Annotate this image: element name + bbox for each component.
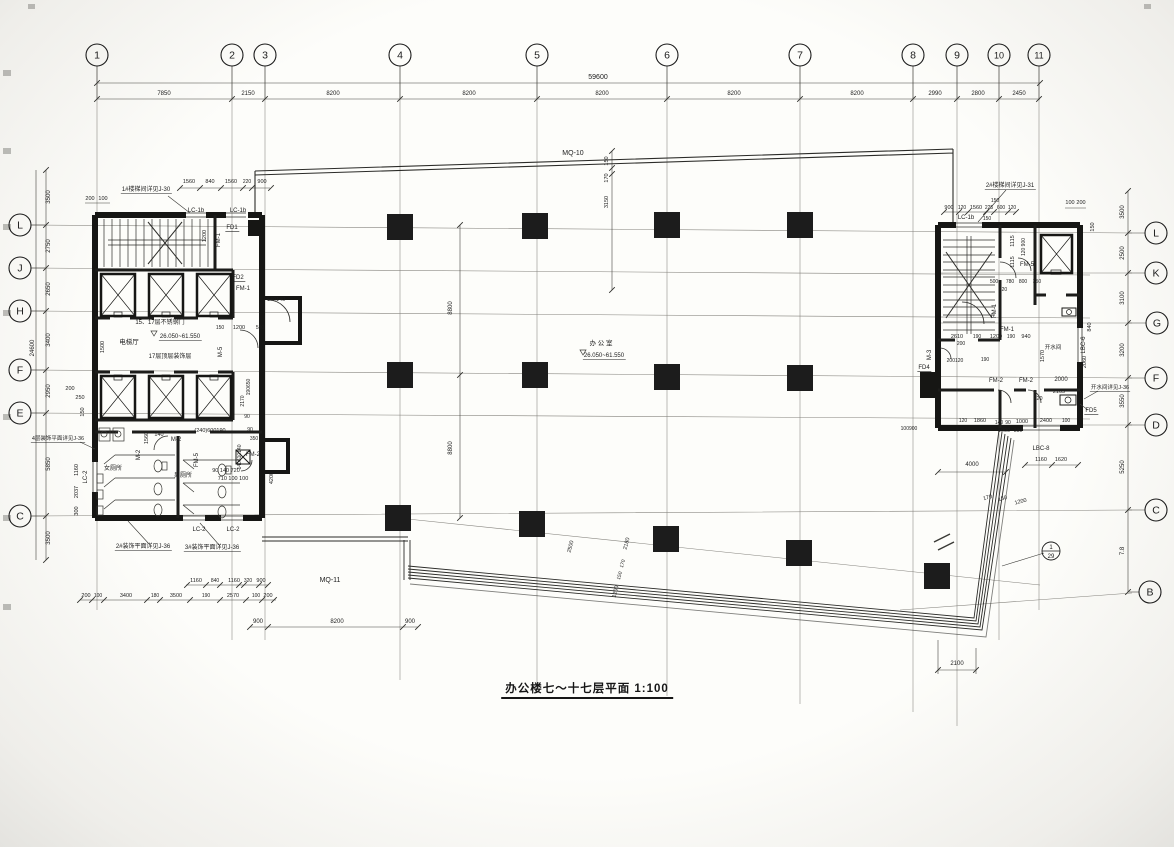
annotation-label: 90 <box>1005 420 1011 426</box>
annotation-label: 300 <box>74 506 80 515</box>
annotation-label: 840 <box>1087 322 1093 331</box>
annotation-label: 150 <box>998 495 1008 503</box>
annotation-label: 3400 <box>120 593 132 599</box>
column <box>654 364 680 390</box>
annotation-label: 1000 <box>998 428 1010 434</box>
annotation-label: 1560 <box>225 179 237 185</box>
annotation-label: 710 100 100 <box>218 476 249 482</box>
annotation-label: FM-2 <box>246 452 261 458</box>
grid-bubble-label: 9 <box>954 50 960 62</box>
annotation-label: 190 <box>202 593 211 599</box>
annotation-label: 2150 <box>241 91 255 97</box>
annotation-label: 3500 <box>46 531 52 545</box>
annotation-label: 100 <box>1062 418 1071 424</box>
drawing-title: 办公楼七～十七层平面 1:100 <box>501 680 673 699</box>
annotation-label: 2500 <box>567 540 576 553</box>
annotation-label: 3#装饰平面详见J-36 <box>185 543 240 551</box>
annotation-label: 1160 <box>228 578 240 584</box>
annotation-label: 900 <box>944 205 953 211</box>
annotation-label: 190650 <box>246 378 252 395</box>
annotation-label: 150 <box>1090 222 1096 231</box>
annotation-label: 200 <box>957 341 966 347</box>
annotation-label: 2100 <box>950 661 964 667</box>
annotation-label: FD1 <box>226 225 238 231</box>
annotation-label: 120 900 <box>1021 238 1027 256</box>
annotation-label: FM-1 <box>236 286 251 292</box>
annotation-label: FD2 <box>232 275 244 281</box>
grid-bubble-label: 5 <box>534 50 540 62</box>
annotation-label: FM-1 <box>1000 327 1015 333</box>
annotation-label: LC-1b <box>958 215 975 221</box>
annotation-label: 190 <box>1007 334 1016 340</box>
annotation-label: 120 <box>958 205 967 211</box>
annotation-label: 550 <box>256 325 265 331</box>
annotation-label: 140610140 <box>237 444 243 469</box>
annotation-label: 640140 <box>267 297 285 303</box>
grid-bubble-label: 8 <box>910 50 916 62</box>
annotation-label: 225 <box>985 205 994 211</box>
annotation-label: 120 <box>999 287 1008 293</box>
annotation-label: 90 <box>247 427 253 433</box>
annotation-label: 4200 <box>269 472 275 484</box>
annotation-label: FM-1 <box>992 303 998 318</box>
annotation-label: 8800 <box>448 301 454 315</box>
annotation-label: 140 <box>154 432 163 438</box>
annotation-label: 1000 <box>1016 419 1028 425</box>
curtain-wall-mq11 <box>262 430 1014 637</box>
annotation-label: 840 <box>211 578 220 584</box>
annotation-label: 100 <box>252 593 261 599</box>
annotation-label: 150 <box>80 407 86 416</box>
annotation-label: 1200 <box>612 585 621 598</box>
annotation-label: LC-2 <box>192 527 206 533</box>
annotation-label: LC-1b <box>230 208 247 214</box>
annotation-label: 2950 <box>46 384 52 398</box>
annotation-label: 3500 <box>46 190 52 204</box>
annotation-label: 5850 <box>46 457 52 471</box>
annotation-label: 180 <box>151 593 160 599</box>
annotation-label: M-2 <box>171 437 182 443</box>
annotation-label: 90 140 720 <box>212 468 240 474</box>
annotation-label: 8200 <box>462 91 476 97</box>
window-lines <box>93 213 1082 520</box>
annotation-label: 780 <box>1006 279 1015 285</box>
annotation-label: 2750 <box>46 239 52 253</box>
annotation-label: 1200 <box>990 334 1002 340</box>
annotation-label: 900 <box>253 619 264 625</box>
annotation-label: 900 <box>256 578 265 584</box>
annotation-label: 8200 <box>326 91 340 97</box>
annotation-label: 2170 <box>240 395 246 406</box>
annotation-label: 200 <box>65 386 74 392</box>
grid-bubble-label: 10 <box>994 51 1004 61</box>
annotation-label: 2060 <box>1082 356 1088 368</box>
annotation-label: 8200 <box>850 91 864 97</box>
column <box>385 505 411 531</box>
left-elevator-banks <box>101 274 231 418</box>
right-stair <box>943 236 995 334</box>
annotation-label: 600 <box>997 205 1006 211</box>
annotation-label: 男厕所 <box>174 471 192 479</box>
annotation-label: 开水间详见J-36 <box>1091 383 1129 391</box>
annotation-label: FM-5 <box>194 452 200 467</box>
grid-bubble-label: L <box>17 220 23 232</box>
annotation-label: 250 <box>75 395 84 401</box>
annotation-label: FM-2 <box>1019 378 1034 384</box>
annotation-label: 2037 <box>74 486 80 498</box>
annotation-label: 8200 <box>330 619 344 625</box>
annotation-label: 170 <box>983 494 993 502</box>
annotation-label: 800 <box>1019 279 1028 285</box>
column <box>787 212 813 238</box>
left-core-protrusions <box>262 298 300 472</box>
grid-bubble-label: 3 <box>262 50 268 62</box>
annotation-label: 2610 <box>951 334 963 340</box>
annotation-label: 3550 <box>1120 394 1126 408</box>
annotation-label: 100 <box>94 593 103 599</box>
annotation-label: 1560 <box>970 205 982 211</box>
annotation-label: 170 <box>604 173 610 182</box>
annotation-label: 350 <box>250 436 259 442</box>
annotation-label: 100 <box>98 196 107 202</box>
structural-columns <box>385 212 950 589</box>
grid-bubble-label: 4 <box>397 50 403 62</box>
annotation-label: 1500 <box>100 341 106 353</box>
annotation-label: M-3 <box>927 349 933 360</box>
annotation-label: 1570 <box>1040 350 1046 362</box>
annotation-label: 3400 <box>46 333 52 347</box>
annotation-label: 3100 <box>1120 291 1126 305</box>
annotation-label: 1200 <box>1014 498 1027 507</box>
grid-bubble-label: B <box>1146 587 1153 599</box>
annotation-label: 开水间 <box>1045 343 1062 351</box>
annotation-label: 2#装饰平面详见J-36 <box>116 542 171 550</box>
annotation-label: 1#楼梯间详见J-30 <box>122 185 171 193</box>
annotation-label: 2400 <box>1040 418 1052 424</box>
annotation-label: 5250 <box>1120 460 1126 474</box>
annotation-label: 1860 <box>974 418 986 424</box>
floor-plan-svg: 1234567891011LJHFECLKGFDCB129 5960078502… <box>0 0 1174 847</box>
annotation-label: 2000 <box>1054 377 1068 383</box>
annotation-label: M-2 <box>136 449 142 460</box>
annotation-label: M-5 <box>218 346 224 357</box>
annotation-label: 390 <box>1014 428 1023 434</box>
annotation-label: FM-5 <box>1020 262 1035 268</box>
annotation-label: 办 公 室 <box>589 338 613 347</box>
annotation-label: 4层装饰平面详见J-36 <box>32 434 84 442</box>
annotation-label: 900 <box>257 179 266 185</box>
annotation-label: 3150 <box>604 196 610 208</box>
annotation-label: 190 <box>973 334 982 340</box>
annotation-label: 2800 <box>971 91 985 97</box>
annotation-label: LBC-6 <box>1081 336 1087 354</box>
grid-bubble-label: D <box>1152 420 1160 432</box>
annotation-label: 220 <box>243 179 252 185</box>
annotation-label: 150 <box>604 156 610 165</box>
annotation-label: 1200 <box>202 230 208 242</box>
annotation-label: 2500 <box>1120 246 1126 260</box>
annotation-label: 100900 <box>901 426 918 432</box>
annotation-label: 1560 <box>144 432 150 444</box>
annotation-label: (240)600190 <box>194 428 225 434</box>
annotation-label: 2450 <box>1012 91 1026 97</box>
grid-bubble-label: 2 <box>229 50 235 62</box>
annotation-label: 8200 <box>727 91 741 97</box>
annotation-label: 200120 <box>947 358 964 364</box>
annotation-label: 140 <box>995 420 1004 426</box>
column <box>786 540 812 566</box>
annotation-label: 200 <box>1076 200 1085 206</box>
grid-bubble-label: C <box>1152 505 1160 517</box>
annotation-label: 8800 <box>448 441 454 455</box>
column <box>787 365 813 391</box>
detail-bubble-bottom: 29 <box>1048 554 1055 560</box>
annotation-label: 26.050~61.550 <box>584 353 625 359</box>
annotation-label: 3200 <box>1120 343 1126 357</box>
annotation-label: 1115 <box>1010 256 1016 267</box>
annotation-label: 1160 <box>74 464 80 476</box>
annotation-label: 190 <box>981 357 990 363</box>
duct-shafts <box>248 220 938 398</box>
grid-bubble-label: K <box>1152 268 1159 280</box>
annotation-label: 1200 <box>233 325 245 331</box>
annotation-label: 150 <box>983 216 992 222</box>
detail-bubble-top: 1 <box>1049 545 1053 551</box>
annotation-label: 120 <box>1033 396 1042 402</box>
annotation-label: LC-1b <box>188 208 205 214</box>
annotation-label: FM-2 <box>989 378 1004 384</box>
grid-bubble-label: 6 <box>664 50 670 62</box>
annotation-label: 120 <box>959 418 968 424</box>
annotation-label: 女厕所 <box>104 464 122 472</box>
annotation-label: 200 <box>81 593 90 599</box>
annotation-label: 170 <box>619 559 627 569</box>
annotation-label: FM-1 <box>216 232 222 247</box>
annotation-label: 150 <box>216 325 225 331</box>
annotation-label: 100 <box>1065 200 1074 206</box>
right-elevator <box>1041 235 1072 274</box>
annotation-label: MQ-10 <box>562 150 584 157</box>
annotation-label: 1560 <box>183 179 195 185</box>
annotation-label: LC-2 <box>226 527 240 533</box>
annotation-label: 17层顶层装饰层 <box>149 352 192 360</box>
column <box>653 526 679 552</box>
annotation-label: 7.8 <box>1120 546 1126 555</box>
annotation-label: 350 <box>1033 279 1042 285</box>
annotation-label: 7850 <box>157 91 171 97</box>
drawing-sheet: 1234567891011LJHFECLKGFDCB129 5960078502… <box>0 0 1174 847</box>
grid-bubble-label: C <box>16 511 24 523</box>
grid-bubble-label: H <box>16 306 24 318</box>
annotation-label: 2990 <box>928 91 942 97</box>
annotation-label: 1160 <box>190 578 202 584</box>
annotation-label: 1115 <box>1010 235 1016 246</box>
annotation-label: 90 <box>244 414 250 420</box>
grid-bubble-label: F <box>17 365 23 377</box>
annotation-label: 500 <box>990 279 999 285</box>
annotation-label: 8200 <box>595 91 609 97</box>
grid-bubble-label: G <box>1153 318 1161 330</box>
annotation-label: 900 <box>405 619 416 625</box>
annotation-label: LBC-8 <box>1032 446 1050 452</box>
annotation-label: 320 <box>244 578 253 584</box>
annotation-label: 4000 <box>965 462 979 468</box>
grid-bubble-label: E <box>16 408 23 420</box>
annotation-label: 26.050~61.550 <box>160 334 201 340</box>
annotation-label: 840 <box>205 179 214 185</box>
annotation-label: 15、17层不锈钢门 <box>135 318 184 326</box>
annotation-label: 2650 <box>46 282 52 296</box>
annotation-label: LC-2 <box>83 470 89 484</box>
annotation-label: 2105 <box>1053 389 1065 395</box>
grid-bubble-label: J <box>17 263 22 275</box>
column <box>387 362 413 388</box>
annotation-label: 2570 <box>227 593 239 599</box>
grid-bubble-label: 11 <box>1034 51 1043 61</box>
annotation-label: 1160 <box>1035 457 1047 463</box>
annotation-label: 3500 <box>170 593 182 599</box>
grid-bubble-label: L <box>1153 228 1159 240</box>
annotation-label: FD4 <box>918 365 930 371</box>
column <box>522 362 548 388</box>
annotation-label: 1620 <box>1055 457 1067 463</box>
annotation-label: 200 <box>85 196 94 202</box>
grid-bubble-label: F <box>1153 373 1159 385</box>
annotation-label: 150 <box>991 198 1000 204</box>
annotation-label: 150 <box>616 571 624 581</box>
column <box>387 214 413 240</box>
column <box>924 563 950 589</box>
annotation-label: MQ-11 <box>320 577 341 584</box>
annotation-label: FD5 <box>1085 408 1097 414</box>
annotation-label: 940 <box>1021 334 1030 340</box>
annotation-label: 电梯厅 <box>119 337 139 346</box>
annotation-label: 120 <box>1008 205 1017 211</box>
annotation-label: 2180 <box>623 537 632 550</box>
column <box>654 212 680 238</box>
column <box>522 213 548 239</box>
grid-bubble-label: 7 <box>797 50 803 62</box>
column <box>519 511 545 537</box>
annotation-label: 24600 <box>30 339 36 356</box>
grid-bubble-label: 1 <box>94 50 100 62</box>
annotation-label: 200 <box>263 593 272 599</box>
annotation-label: 59600 <box>588 74 608 81</box>
annotation-label: 2#楼梯间详见J-31 <box>986 181 1035 189</box>
annotation-label: 3500 <box>1120 205 1126 219</box>
